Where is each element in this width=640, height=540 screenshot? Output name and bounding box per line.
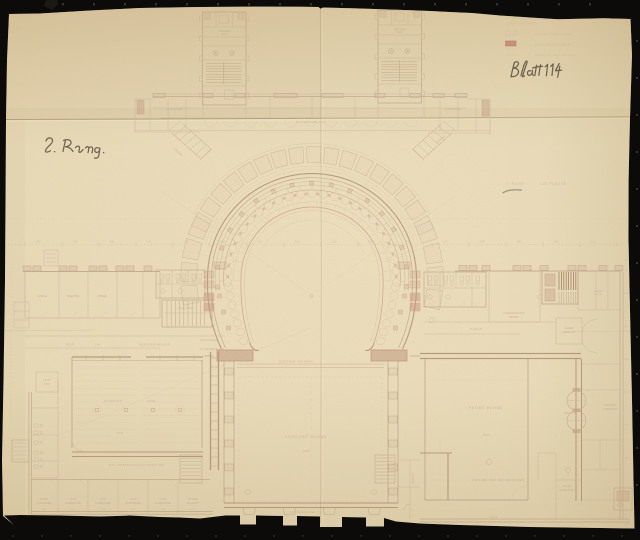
svg-text:VERSAND DER DEKORATIONEN: VERSAND DER DEKORATIONEN [472, 478, 525, 482]
svg-text:GARDEROBE: GARDEROBE [602, 408, 618, 411]
svg-text:5.50: 5.50 [443, 241, 448, 244]
svg-text:DIREKTOR: DIREKTOR [67, 295, 80, 298]
svg-text:BODEN: BODEN [40, 498, 49, 501]
svg-text:ZIMMER: ZIMMER [97, 295, 107, 298]
svg-text:5.50: 5.50 [73, 241, 78, 244]
svg-text:2.4 KLEIDERABLAGE: 2.4 KLEIDERABLAGE [200, 348, 224, 351]
svg-text:KLEIDERABLAGE: KLEIDERABLAGE [296, 120, 326, 124]
svg-text:21.90: 21.90 [303, 450, 310, 453]
svg-text:REQUISIT: REQUISIT [413, 472, 415, 483]
svg-text:16.70: 16.70 [117, 432, 124, 435]
svg-text:KLEINE: KLEINE [563, 485, 572, 488]
svg-text:CHOR: CHOR [99, 498, 106, 501]
svg-text:KONVERSATIONS: KONVERSATIONS [503, 312, 525, 315]
svg-text:5.50: 5.50 [147, 241, 152, 244]
svg-text:KÜCHE: KÜCHE [594, 293, 602, 296]
svg-text:5.50: 5.50 [221, 241, 226, 244]
svg-text:SAAL 2 RANG: SAAL 2 RANG [178, 307, 194, 310]
svg-text:3.90: 3.90 [110, 241, 115, 244]
svg-text:EISERNER VORHANG: EISERNER VORHANG [279, 360, 313, 364]
svg-text:18.40: 18.40 [483, 434, 490, 437]
svg-text:GARDEROBE: GARDEROBE [155, 502, 171, 505]
svg-text:3.90: 3.90 [184, 241, 189, 244]
svg-text:VORDERE BÜHNE: VORDERE BÜHNE [285, 435, 328, 439]
svg-text:GARDEROBE: GARDEROBE [559, 489, 575, 492]
svg-text:KLEIDERABLAGE: KLEIDERABLAGE [140, 343, 170, 347]
svg-text:NEUE MAUERWERKE: NEUE MAUERWERKE [535, 43, 570, 47]
svg-text:3.90: 3.90 [36, 241, 41, 244]
svg-text:WARME: WARME [594, 290, 603, 293]
svg-text:5.50: 5.50 [517, 241, 522, 244]
svg-text:CHOR: CHOR [129, 498, 136, 501]
svg-text:SITZUNGS: SITZUNGS [104, 399, 122, 403]
svg-text:M.S. UNTERRICHTSSAAL MUSIK VER: M.S. UNTERRICHTSSAAL MUSIK VER. [109, 463, 165, 467]
svg-text:GARDEROBE: GARDEROBE [36, 502, 52, 505]
svg-text:RAUM: RAUM [396, 31, 403, 34]
svg-text:RAUM: RAUM [221, 33, 228, 36]
svg-text:5.50: 5.50 [591, 241, 596, 244]
svg-text:ANKLEIDE: ANKLEIDE [394, 28, 406, 31]
svg-text:WC ELEKT: WC ELEKT [187, 502, 200, 505]
svg-text:CHOR: CHOR [69, 498, 76, 501]
svg-text:MUSIKER: MUSIKER [605, 404, 616, 407]
svg-text:GARD 4.50: GARD 4.50 [563, 331, 576, 334]
svg-text:GARDEROBE: GARDEROBE [95, 502, 111, 505]
svg-text:GARDEROBE: GARDEROBE [125, 502, 141, 505]
svg-text:5.50: 5.50 [295, 241, 300, 244]
svg-text:DAMEN: DAMEN [565, 327, 574, 330]
svg-text:FLÄCHE VORHANDEN: FLÄCHE VORHANDEN [535, 32, 572, 36]
svg-text:ANKLEIDE: ANKLEIDE [219, 30, 231, 33]
svg-text:1 94: 1 94 [95, 344, 100, 347]
svg-text:3.90: 3.90 [406, 241, 411, 244]
svg-text:PROBEN: PROBEN [188, 498, 198, 501]
svg-text:SAAL: SAAL [147, 399, 156, 403]
svg-text:3.90: 3.90 [258, 241, 263, 244]
svg-text:MAGAZIN: MAGAZIN [565, 412, 576, 415]
svg-text:LICHT: LICHT [43, 379, 51, 382]
svg-text:STADT THEATER Z: STADT THEATER Z [507, 22, 537, 26]
svg-text:GARDEROBE: GARDEROBE [444, 107, 461, 111]
svg-text:GARDEROBE: GARDEROBE [65, 502, 81, 505]
svg-text:GARDEROBE: GARDEROBE [166, 107, 183, 111]
svg-text:KANZLEI: KANZLEI [37, 295, 48, 298]
svg-text:FLUR 2.60: FLUR 2.60 [470, 327, 483, 331]
svg-text:HOF: HOF [44, 383, 50, 386]
svg-text:2. RANG: 2. RANG [506, 182, 525, 186]
svg-text:ABBRUCH DER MAUERN: ABBRUCH DER MAUERN [535, 53, 576, 57]
svg-text:132 PLÄTZE: 132 PLÄTZE [540, 182, 567, 186]
svg-text:PRIVATKANZLEI: PRIVATKANZLEI [200, 339, 219, 342]
svg-text:3.90: 3.90 [554, 241, 559, 244]
svg-text:ZIMMER: ZIMMER [509, 316, 519, 319]
svg-text:PROBE BÜHNE: PROBE BÜHNE [469, 406, 503, 410]
svg-text:3.90: 3.90 [332, 241, 337, 244]
svg-text:4.2 3.2: 4.2 3.2 [490, 516, 498, 519]
svg-text:5.50: 5.50 [369, 241, 374, 244]
svg-text:3.90: 3.90 [480, 241, 485, 244]
svg-text:CHOR: CHOR [159, 498, 166, 501]
svg-text:FLUR: FLUR [66, 343, 75, 347]
